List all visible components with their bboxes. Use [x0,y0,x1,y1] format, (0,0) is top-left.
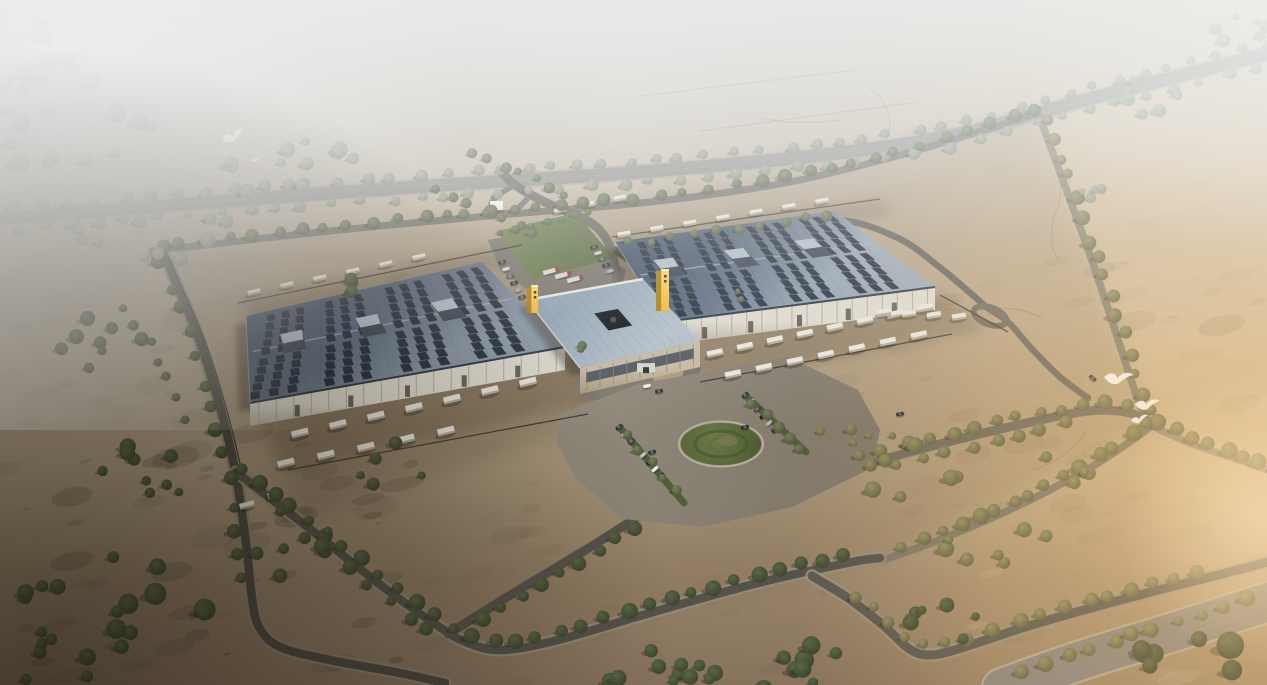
rendering-canvas [0,0,1267,685]
aerial-site-rendering [0,0,1267,685]
atmosphere-effects [0,0,1267,685]
bottom-left-vignette [0,0,1267,685]
